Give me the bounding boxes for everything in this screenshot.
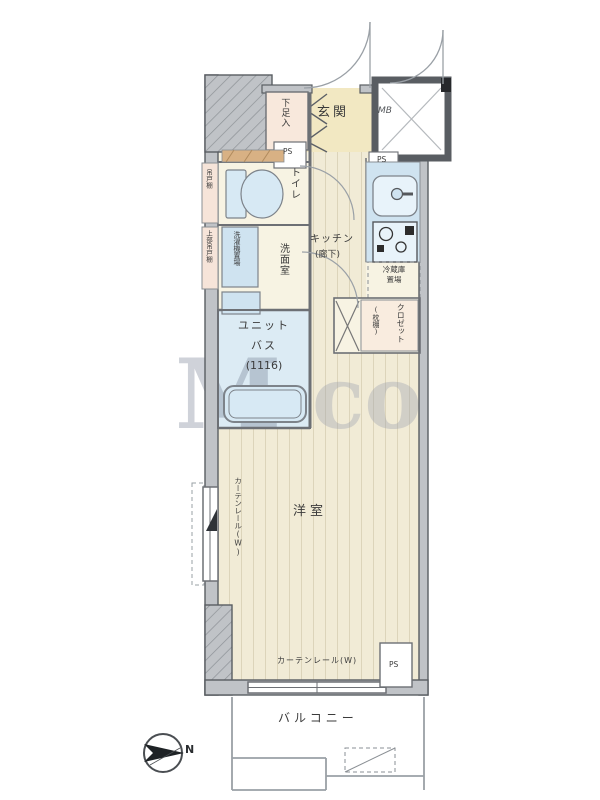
ps-room-label: PS	[389, 661, 398, 670]
balcony-label: バルコニー	[278, 712, 358, 726]
closet-sub-label: (枕棚)	[372, 306, 380, 336]
washer-label: 洗濯機置場	[233, 231, 241, 266]
mb-label: MB	[378, 106, 392, 116]
closet-label: クロゼット	[396, 303, 405, 343]
balcony-hatch	[345, 748, 395, 772]
floorplan-canvas: M co	[0, 0, 600, 800]
kitchen-label: キッチン	[310, 234, 354, 246]
toilet-label: トイレ	[288, 167, 300, 200]
meter-box-door-arc	[390, 30, 443, 84]
curtain-rail-left-label: カーテンレール(W)	[233, 477, 242, 557]
meter-box	[375, 78, 451, 158]
curtain-rail-bottom-label: カーテンレール(W)	[277, 656, 357, 665]
ps-entrance-label: PS	[283, 148, 292, 157]
unit-bath-label-line3: (1116)	[222, 360, 306, 373]
fridge-label-line2: 置場	[370, 276, 418, 285]
bottom-window	[248, 682, 386, 693]
shoe-box-label: 下足入	[279, 98, 289, 128]
left-window	[192, 483, 218, 585]
western-room-label: 洋室	[293, 505, 327, 520]
kitchen-strip-floor	[366, 158, 422, 310]
washroom-label: 洗面室	[277, 243, 289, 276]
kitchen-sub-label: (廊下)	[315, 250, 340, 260]
compass-north-label: N	[185, 744, 194, 757]
unit-bath-label-line1: ユニット	[222, 320, 306, 333]
cabinet-toilet-label: 吊戸棚	[204, 169, 211, 189]
ps-kitchen-label: PS	[377, 156, 386, 165]
cabinet-washer-label: 上部吊戸棚	[204, 230, 211, 263]
genkan-label: 玄関	[317, 106, 349, 121]
fridge-label-line1: 冷蔵庫	[370, 266, 418, 275]
unit-bath-label-line2: バス	[222, 340, 306, 353]
entrance-door-arc	[304, 22, 370, 88]
compass-icon	[144, 734, 184, 772]
